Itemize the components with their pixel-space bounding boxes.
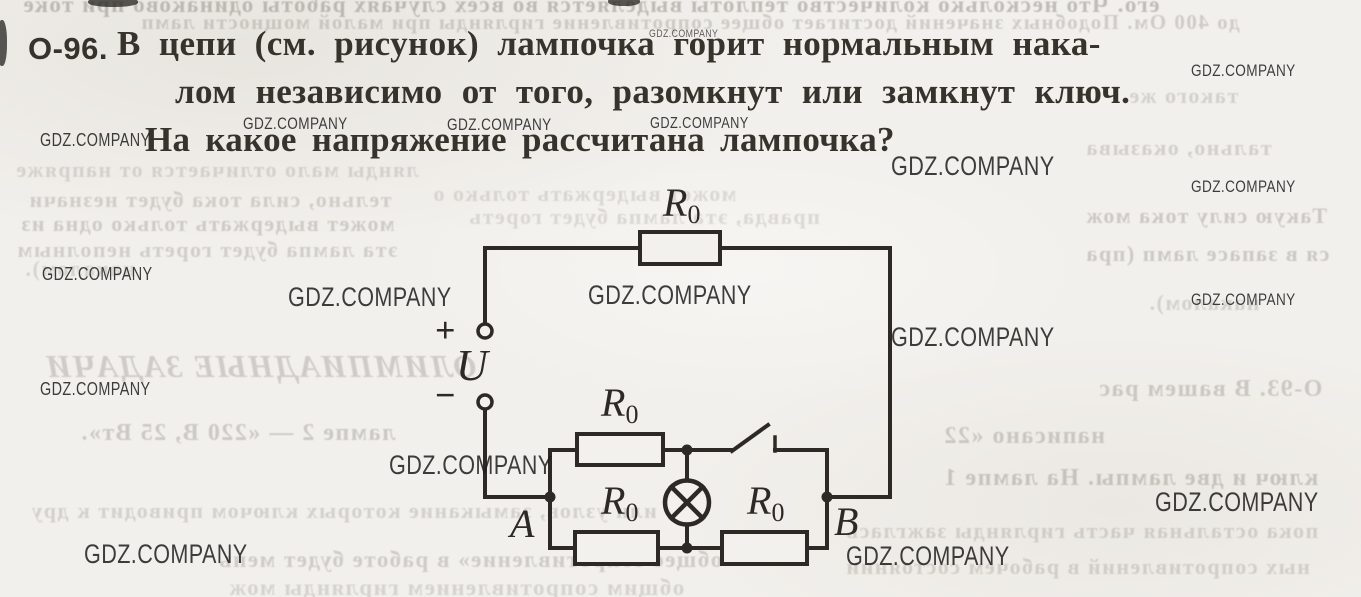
node-dot bbox=[682, 543, 693, 554]
lamp-icon bbox=[665, 481, 709, 525]
scanned-page: его. Что несколько количество теплоты вы… bbox=[0, 0, 1361, 597]
resistor-label: R0 bbox=[746, 478, 784, 527]
resistor-branch-bottom-right bbox=[722, 532, 807, 564]
resistor-branch-top bbox=[577, 434, 663, 465]
plus-sign: + bbox=[435, 310, 456, 350]
circuit-diagram: R0 R0 R0 R0 U + − A B bbox=[420, 178, 920, 597]
resistor-label: R0 bbox=[662, 180, 700, 229]
problem-number: О-96. bbox=[28, 31, 108, 67]
problem-text-line2: лом независимо от того, разомкнут или за… bbox=[175, 74, 1130, 109]
problem-text-line3: На какое напряжение рассчитана лампочка? bbox=[145, 122, 895, 157]
problem-text-line1: В цепи (см. рисунок) лампочка горит норм… bbox=[117, 26, 1101, 61]
resistor-top bbox=[640, 232, 720, 264]
minus-sign: − bbox=[435, 375, 456, 415]
node-dot bbox=[682, 445, 693, 456]
resistor-branch-bottom-left bbox=[575, 532, 658, 564]
node-b-dot bbox=[822, 492, 833, 503]
resistor-label: R0 bbox=[600, 380, 638, 429]
terminal-plus bbox=[478, 324, 492, 338]
node-b-label: B bbox=[834, 499, 858, 544]
resistor-label: R0 bbox=[600, 478, 638, 527]
node-a-dot bbox=[545, 492, 556, 503]
terminal-minus bbox=[478, 395, 492, 409]
switch-icon bbox=[732, 425, 775, 451]
source-voltage-label: U bbox=[456, 341, 491, 390]
node-a-label: A bbox=[507, 501, 535, 546]
